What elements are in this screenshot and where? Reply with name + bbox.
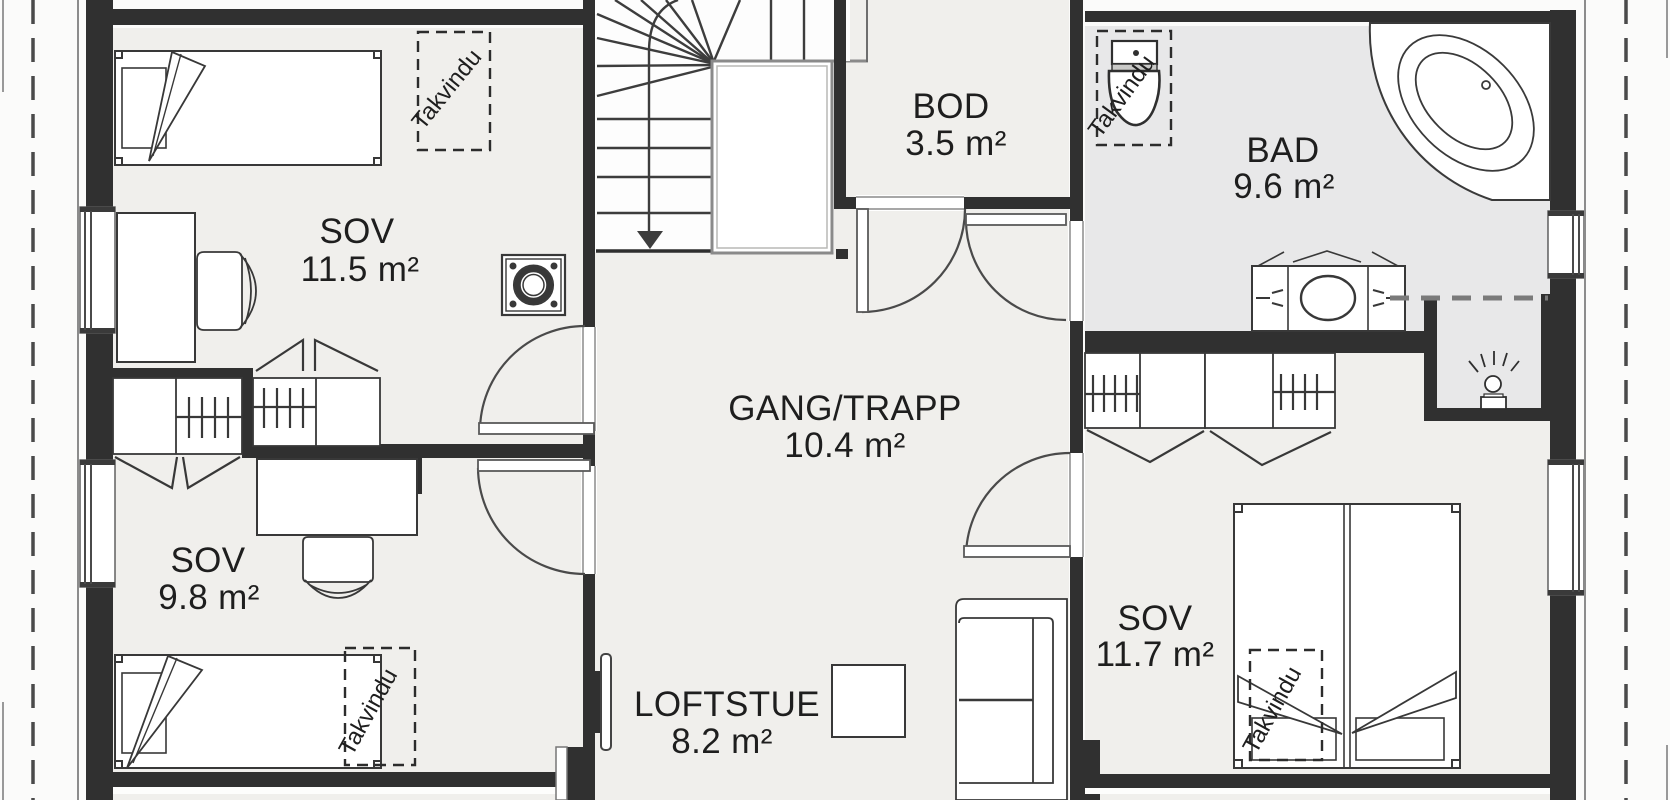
svg-text:8.2 m²: 8.2 m² (671, 722, 773, 761)
svg-text:11.7 m²: 11.7 m² (1096, 635, 1215, 674)
svg-text:9.8 m²: 9.8 m² (158, 578, 260, 617)
svg-text:LOFTSTUE: LOFTSTUE (634, 685, 820, 724)
svg-text:9.6 m²: 9.6 m² (1233, 167, 1335, 206)
svg-text:BOD: BOD (912, 87, 989, 126)
svg-text:SOV: SOV (319, 212, 394, 251)
svg-text:10.4 m²: 10.4 m² (784, 426, 905, 465)
svg-text:3.5 m²: 3.5 m² (905, 124, 1007, 163)
svg-text:BAD: BAD (1246, 131, 1319, 170)
svg-text:11.5 m²: 11.5 m² (301, 250, 420, 289)
svg-text:SOV: SOV (170, 541, 245, 580)
svg-text:SOV: SOV (1117, 599, 1192, 638)
svg-text:GANG/TRAPP: GANG/TRAPP (728, 389, 961, 428)
